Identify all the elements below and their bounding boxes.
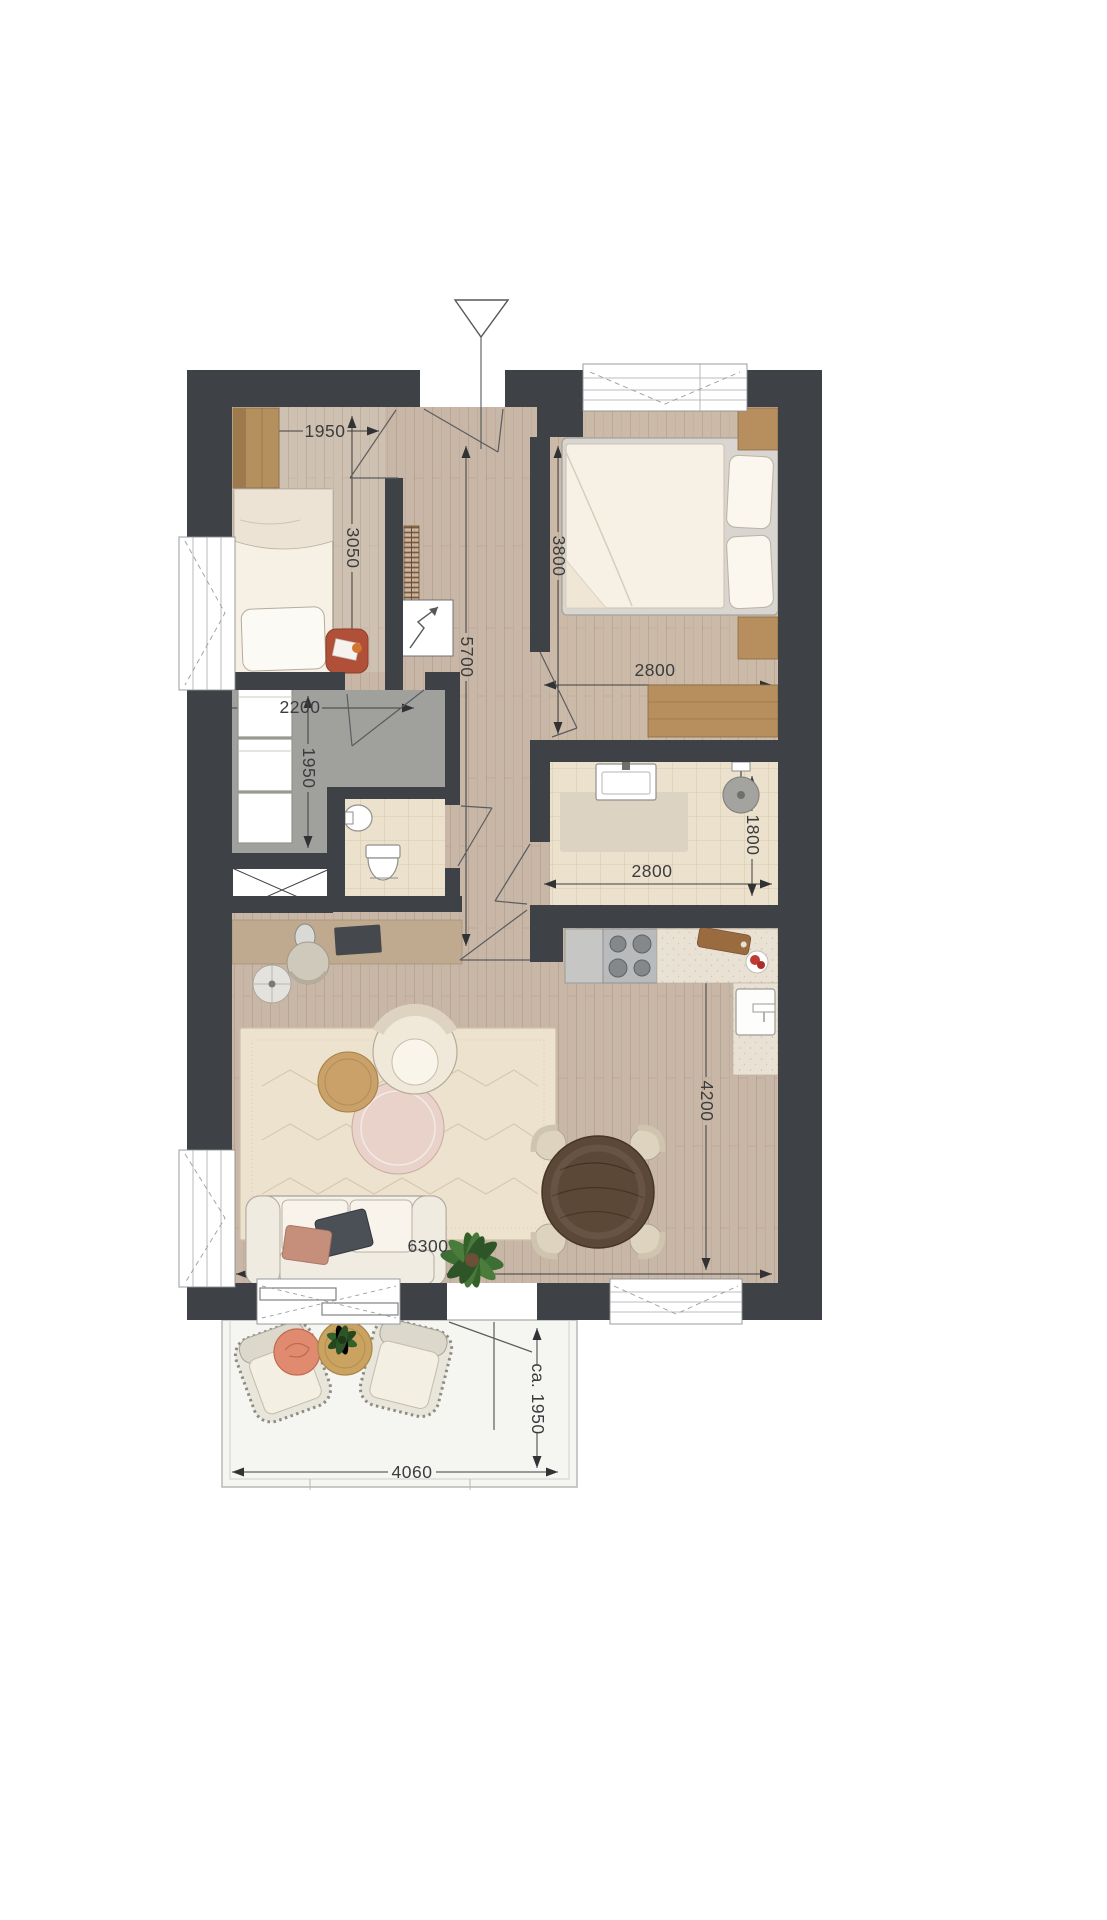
bathroom-sink-icon: [596, 762, 656, 800]
double-bed: [562, 438, 778, 615]
window-bedroom-small: [179, 537, 235, 690]
dim-living-width: 6300: [408, 1236, 449, 1256]
dining-table: [542, 1136, 654, 1248]
nightstand-bottom: [738, 617, 778, 659]
nightstand-top: [738, 408, 778, 450]
electrical-panel-icon: [399, 600, 453, 656]
dim-storage-depth: 1950: [299, 748, 319, 789]
dim-bedroom-main-width: 2800: [635, 660, 676, 680]
floor-plan-drawing: 1950 3050 3800 5700 2800 2200 1950 1800 …: [0, 0, 1107, 1920]
window-bedroom-main: [583, 364, 747, 411]
window-living: [179, 1150, 235, 1287]
dim-terrace-width: 4060: [392, 1462, 433, 1482]
laptop-icon: [334, 924, 382, 955]
coffee-table-wood: [318, 1052, 378, 1112]
dim-bathroom-depth: 1800: [743, 815, 763, 856]
dim-bedroom-small-width: 1950: [305, 421, 346, 441]
dim-living-depth: 4200: [697, 1081, 717, 1122]
dim-terrace-depth: ca. 1950: [528, 1363, 548, 1434]
tomato-plate-icon: [746, 951, 768, 973]
sofa-pillow-pink: [282, 1225, 332, 1265]
dim-bedroom-main-depth: 3800: [549, 536, 569, 577]
bath-mat: [560, 792, 688, 852]
dim-hall-length: 5700: [457, 637, 477, 678]
red-side-table: [326, 629, 368, 673]
floor-lamp-icon: [253, 965, 291, 1003]
desk: [232, 920, 462, 964]
floor-plan: 1950 3050 3800 5700 2800 2200 1950 1800 …: [0, 0, 1107, 1920]
single-bed: [234, 489, 333, 683]
dim-bedroom-small-depth: 3050: [343, 528, 363, 569]
wardrobe: [233, 408, 279, 488]
window-dining: [610, 1279, 742, 1324]
dim-storage-width: 2200: [280, 697, 321, 717]
armchair: [373, 1010, 457, 1094]
toilet-sink-icon: [344, 805, 372, 831]
kitchen-sink-icon: [736, 989, 775, 1035]
desk-chair: [287, 942, 329, 984]
dim-bathroom-width: 2800: [632, 861, 673, 881]
sliding-door: [257, 1279, 400, 1324]
stove-icon: [603, 929, 657, 983]
terrace-coral-cushion: [274, 1329, 320, 1375]
sideboard: [648, 685, 778, 737]
